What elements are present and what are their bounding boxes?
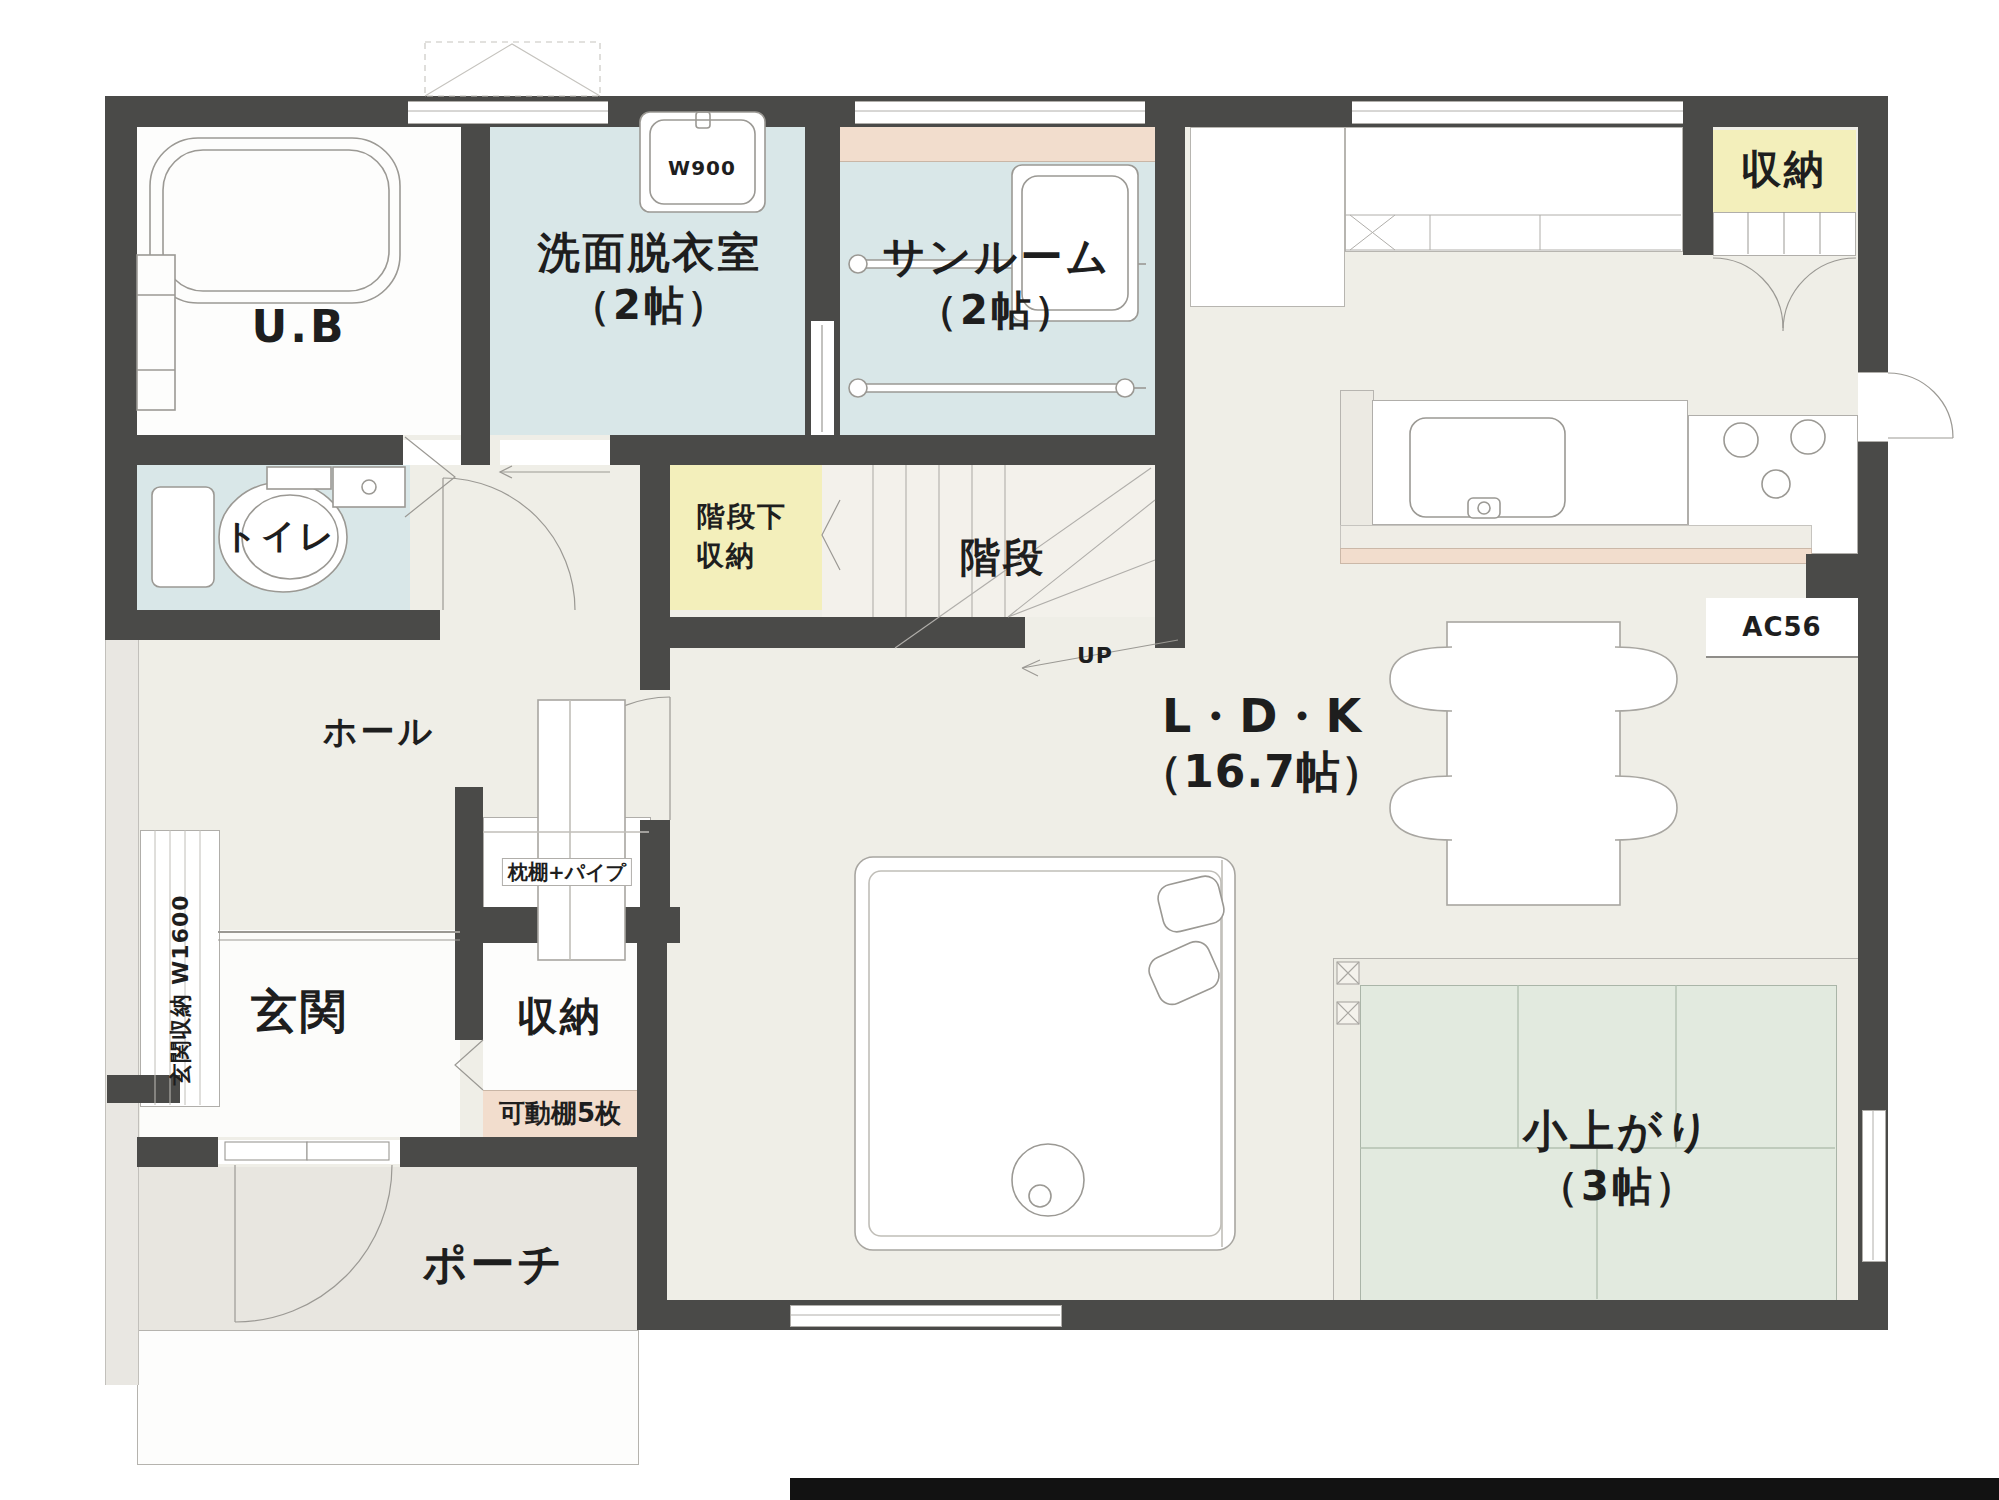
ldk-label1: L・D・K bbox=[1162, 691, 1362, 742]
room-sunroom-label1: サンルーム bbox=[883, 234, 1112, 280]
kadodana-label: 可動棚5枚 bbox=[499, 1099, 621, 1128]
fixtures-overlay bbox=[0, 0, 1999, 1500]
bed bbox=[855, 857, 1235, 1250]
toilet-cabinet bbox=[267, 467, 331, 489]
koagari-label1: 小上がり bbox=[1523, 1107, 1713, 1155]
room-senmen-label2: （2帖） bbox=[570, 283, 730, 327]
under-stairs-label1: 階段下 bbox=[697, 502, 787, 533]
toilet-basin bbox=[333, 467, 405, 507]
porch-label: ポーチ bbox=[422, 1240, 565, 1288]
koagari-label2: （3帖） bbox=[1538, 1164, 1698, 1208]
room-ub-label: U.B bbox=[252, 303, 347, 351]
hall-label: ホール bbox=[323, 713, 436, 750]
ub-vanity bbox=[137, 255, 175, 410]
under-stairs-label2: 収納 bbox=[696, 541, 756, 572]
up-label: UP bbox=[1077, 644, 1113, 668]
closet-tr-label: 収納 bbox=[1741, 147, 1827, 191]
makuradana-label: 枕棚+パイプ bbox=[502, 858, 632, 886]
dining-table bbox=[1447, 622, 1620, 905]
w900-label: W900 bbox=[668, 157, 736, 179]
floor-plan: U.B W900 洗面脱衣室 （2帖） サンルーム （2帖） 収納 トイレ 階段… bbox=[0, 0, 1999, 1500]
footer-divider-bar bbox=[790, 1478, 1999, 1500]
room-senmen-label1: 洗面脱衣室 bbox=[538, 230, 763, 276]
genkan-closet-label: 玄関収納 W1600 bbox=[169, 894, 193, 1085]
bathtub bbox=[150, 138, 400, 303]
ac-label: AC56 bbox=[1742, 613, 1821, 642]
room-genkan-label: 玄関 bbox=[251, 986, 349, 1037]
room-toilet-label: トイレ bbox=[223, 518, 336, 555]
tv-board bbox=[538, 700, 625, 960]
stairs-label: 階段 bbox=[960, 535, 1046, 579]
entry-closet-label: 収納 bbox=[517, 994, 603, 1038]
room-sunroom-label2: （2帖） bbox=[917, 288, 1077, 332]
ldk-label2: （16.7帖） bbox=[1138, 748, 1386, 796]
tatami-step-boxes bbox=[1337, 962, 1359, 1024]
stove-burners bbox=[1724, 420, 1825, 498]
